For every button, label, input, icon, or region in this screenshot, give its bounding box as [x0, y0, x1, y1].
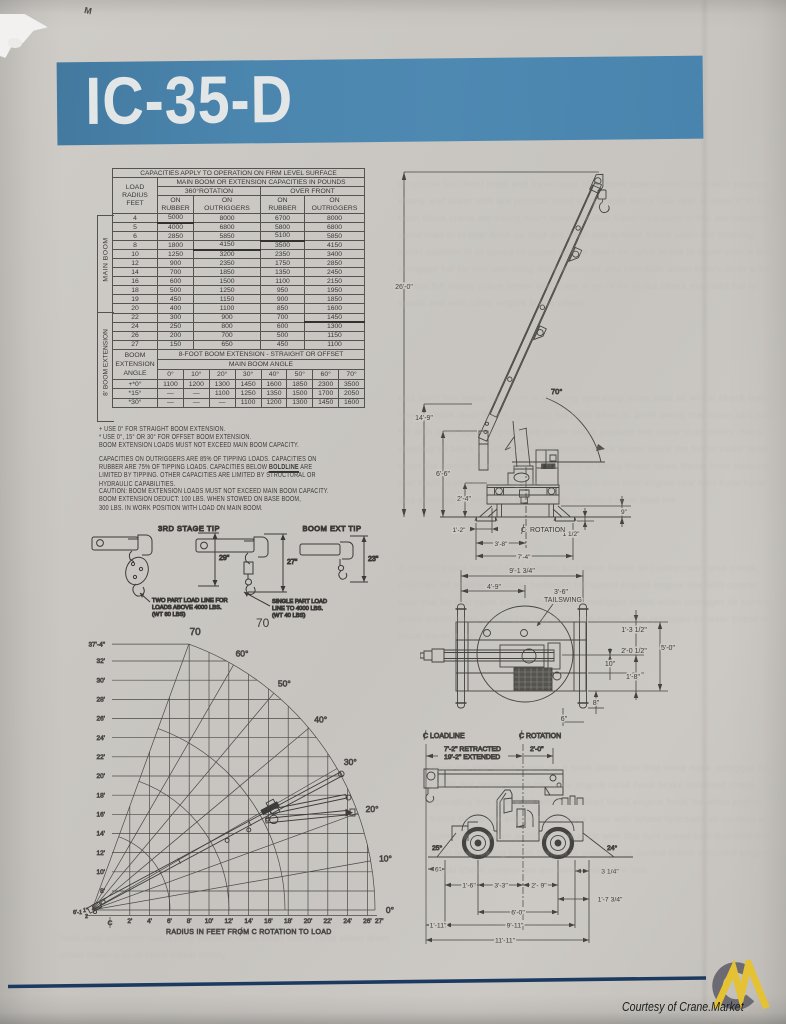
svg-text:9": 9"	[621, 509, 628, 516]
svg-text:C: C	[108, 920, 113, 927]
svg-text:18': 18'	[97, 792, 105, 799]
svg-text:3'-8": 3'-8"	[495, 541, 509, 548]
svg-text:10': 10'	[97, 869, 105, 876]
svg-text:60°: 60°	[236, 649, 249, 659]
svg-text:40°: 40°	[314, 715, 327, 725]
svg-text:10°: 10°	[379, 854, 392, 864]
svg-text:70: 70	[190, 627, 202, 638]
svg-text:6": 6"	[561, 716, 568, 723]
svg-text:50°: 50°	[278, 678, 291, 688]
svg-text:SINGLE PART LOAD: SINGLE PART LOAD	[272, 599, 327, 605]
svg-text:(WT 40 LBS): (WT 40 LBS)	[272, 613, 305, 619]
svg-text:30°: 30°	[344, 757, 357, 767]
svg-text:16': 16'	[97, 812, 105, 819]
svg-text:2'- 9": 2'- 9"	[531, 883, 547, 890]
svg-text:2'-0 1/2": 2'-0 1/2"	[621, 648, 647, 655]
svg-text:32': 32'	[97, 658, 105, 665]
svg-text:20': 20'	[304, 918, 312, 925]
svg-text:6'-1: 6'-1	[73, 910, 82, 916]
svg-text:7'-2" RETRACTED: 7'-2" RETRACTED	[444, 746, 501, 753]
svg-text:10": 10"	[605, 661, 616, 668]
svg-text:24': 24'	[97, 735, 105, 742]
svg-text:27": 27"	[287, 559, 298, 566]
svg-text:27': 27'	[375, 918, 383, 925]
svg-text:28': 28'	[97, 697, 105, 704]
svg-text:1'-6": 1'-6"	[462, 883, 476, 890]
svg-text:14': 14'	[97, 831, 105, 838]
svg-text:12': 12'	[225, 918, 233, 925]
svg-text:30': 30'	[97, 677, 105, 684]
svg-text:0°: 0°	[386, 905, 394, 915]
svg-text:1'-8": 1'-8"	[626, 674, 640, 681]
svg-text:TWO PART LOAD LINE FOR: TWO PART LOAD LINE FOR	[152, 598, 228, 604]
svg-text:11'-11": 11'-11"	[495, 938, 516, 945]
svg-text:14': 14'	[244, 918, 252, 925]
svg-text:2'-0": 2'-0"	[530, 746, 544, 753]
svg-text:37'-4": 37'-4"	[88, 641, 105, 648]
svg-text:2: 2	[85, 914, 88, 920]
svg-text:6'-0": 6'-0"	[511, 910, 525, 917]
svg-text:ROTATION: ROTATION	[530, 527, 565, 534]
svg-text:2': 2'	[127, 918, 132, 925]
svg-text:18': 18'	[284, 918, 292, 925]
svg-text:26': 26'	[97, 716, 105, 723]
svg-text:20': 20'	[97, 773, 105, 780]
svg-text:ROTATION: ROTATION	[526, 733, 561, 740]
svg-text:22': 22'	[97, 754, 105, 761]
svg-text:LOADLINE: LOADLINE	[430, 733, 465, 740]
svg-text:26': 26'	[363, 918, 371, 925]
svg-text:LOADS ABOVE 4000 LBS.: LOADS ABOVE 4000 LBS.	[152, 605, 222, 611]
svg-text:1'-2": 1'-2"	[453, 527, 467, 534]
svg-text:LINE TO 4000 LBS.: LINE TO 4000 LBS.	[272, 606, 323, 612]
svg-text:4': 4'	[147, 918, 152, 925]
svg-text:6': 6'	[167, 918, 172, 925]
svg-text:3RD STAGE TIP: 3RD STAGE TIP	[158, 524, 220, 533]
svg-text:16': 16'	[264, 918, 272, 925]
svg-text:(WT 60 LBS): (WT 60 LBS)	[152, 612, 185, 618]
svg-text:22': 22'	[324, 918, 332, 925]
svg-text:3'-3": 3'-3"	[494, 883, 508, 890]
svg-text:9'-11": 9'-11"	[507, 923, 524, 930]
svg-text:10': 10'	[205, 918, 213, 925]
svg-text:1 1/2": 1 1/2"	[563, 531, 580, 538]
svg-text:29": 29"	[219, 555, 230, 562]
svg-text:12': 12'	[97, 850, 105, 857]
svg-text:1'-7 3/4": 1'-7 3/4"	[598, 897, 623, 904]
svg-text:1'-11": 1'-11"	[430, 923, 447, 930]
svg-text:BOOM EXT TIP: BOOM EXT TIP	[302, 524, 361, 533]
svg-text:8': 8'	[187, 918, 192, 925]
svg-text:8": 8"	[593, 700, 600, 707]
svg-text:5'-0": 5'-0"	[661, 645, 675, 652]
svg-text:20°: 20°	[366, 804, 379, 814]
svg-text:23": 23"	[368, 556, 379, 563]
svg-text:24': 24'	[343, 918, 351, 925]
